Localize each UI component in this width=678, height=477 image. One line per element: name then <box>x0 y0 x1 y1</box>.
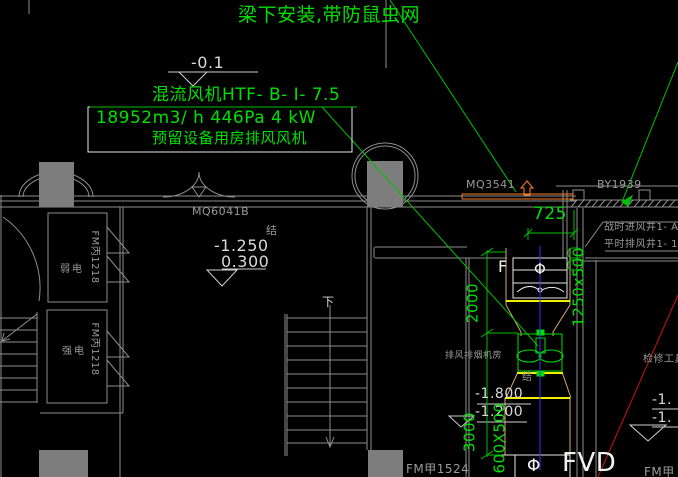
dim-2000-value: 2000 <box>466 283 481 323</box>
stairs-down-label: 下 <box>322 296 335 308</box>
fan-room-label: 排风排烟机房 <box>445 352 502 361</box>
door-label-fm1218-b: FM丙1218 <box>89 322 99 375</box>
fan-blade-icon <box>517 350 541 362</box>
duct-size-lower: 600X500 <box>493 402 508 473</box>
door-label-fm1524: FM甲1524 <box>406 463 469 475</box>
stairs-center <box>285 305 367 456</box>
door-symbol-strong-room <box>107 331 129 386</box>
leader-to-vent <box>390 0 516 192</box>
elevation-right-upper: -1. <box>652 393 672 407</box>
damper-symbol <box>502 258 570 477</box>
window-label-by1939: BY1939 <box>597 179 642 190</box>
level-mark-top <box>168 72 258 86</box>
dim-3000-value: 3000 <box>463 412 478 452</box>
fan-title: 混流风机HTF- B- I- 7.5 <box>152 87 340 104</box>
door-label-fm1218-a: FM丙1218 <box>89 230 99 283</box>
walls <box>0 0 678 477</box>
room-label-weak-power: 弱电 <box>60 265 84 275</box>
jie-label-1: 结 <box>266 225 278 236</box>
jie-label-2: 结 <box>522 373 533 383</box>
door-symbol-weak-room <box>107 227 129 282</box>
room-label-strong-power: 强电 <box>62 347 86 357</box>
elevation-mid-lower: 0.300 <box>221 254 269 270</box>
elevation-shaft-upper: -1.800 <box>475 387 523 401</box>
door-arc-left <box>3 217 40 301</box>
fan-note: 预留设备用房排风风机 <box>152 131 307 146</box>
floor-plan-canvas: 梁下安装,带防鼠虫网 -0.1 混流风机HTF- B- I- 7.5 18952… <box>0 0 678 477</box>
stairs-down-arrow <box>326 429 334 447</box>
roof-note: 梁下安装,带防鼠虫网 <box>238 6 420 25</box>
door-mq6041b <box>163 172 235 197</box>
fan-spec: 18952m3/ h 446Pa 4 kW <box>96 110 316 127</box>
peace-shaft-label: 平时排风井1- 1 <box>604 240 678 250</box>
tool-room-label: 检修工具间 <box>643 355 678 365</box>
window-label-mq6041b: MQ6041B <box>192 206 249 217</box>
green-annotations <box>90 0 678 459</box>
damper-f-label: F <box>498 259 508 275</box>
war-shaft-label: 战时进风井1- A <box>604 223 678 233</box>
leader-to-fan <box>322 107 538 346</box>
duct-flanges <box>505 301 570 398</box>
up-arrow-icon <box>521 181 533 195</box>
duct-size-upper: 1250x500 <box>572 247 587 327</box>
fvd-label: FVD <box>562 450 616 476</box>
plan-linework <box>0 0 678 477</box>
level-mark-mid <box>207 269 266 286</box>
window-label-mq3541: MQ3541 <box>466 179 515 190</box>
elevation-right-lower: -1. <box>652 411 672 425</box>
stairs-left <box>0 312 37 403</box>
level-top-value: -0.1 <box>191 55 224 71</box>
phi-symbol-bottom: Φ <box>527 458 541 475</box>
phi-symbol-top: Φ <box>534 262 546 277</box>
dim-725-value: 725 <box>533 206 567 223</box>
door-label-corner: FM甲 <box>644 466 675 477</box>
